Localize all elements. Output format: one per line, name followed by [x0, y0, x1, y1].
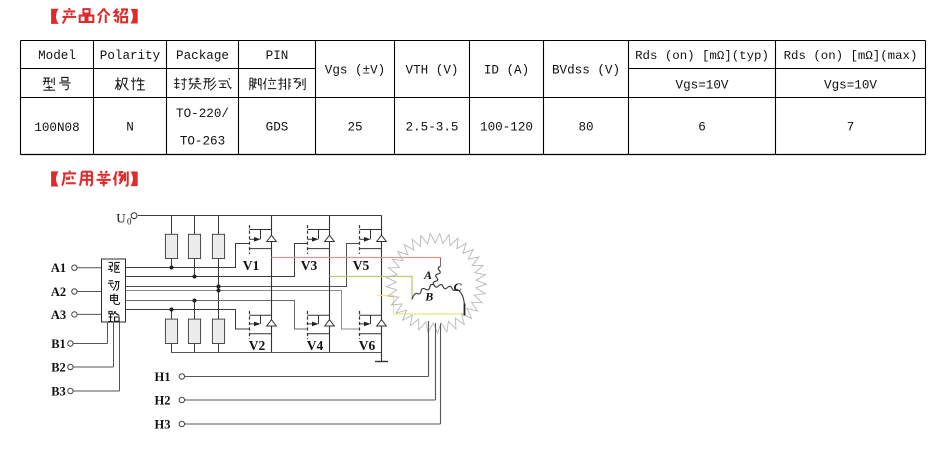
svg-text:A1: A1	[51, 261, 66, 275]
svg-text:GDS: GDS	[266, 121, 289, 135]
svg-text:V6: V6	[359, 338, 376, 353]
svg-text:6: 6	[698, 121, 706, 135]
svg-text:TO-263: TO-263	[180, 135, 225, 149]
svg-text:Rds (on) [mΩ](typ): Rds (on) [mΩ](typ)	[635, 49, 769, 63]
svg-text:U: U	[116, 210, 126, 225]
svg-text:Vgs=10V: Vgs=10V	[676, 78, 729, 92]
svg-text:A2: A2	[51, 285, 66, 299]
svg-text:7: 7	[847, 121, 855, 135]
svg-text:V1: V1	[243, 258, 260, 273]
svg-text:B1: B1	[51, 337, 66, 351]
svg-text:100-120: 100-120	[480, 121, 533, 135]
svg-text:H3: H3	[155, 417, 171, 431]
svg-text:Vgs=10V: Vgs=10V	[824, 78, 877, 92]
svg-text:N: N	[126, 121, 134, 135]
svg-text:H1: H1	[155, 370, 171, 384]
svg-text:Package: Package	[176, 49, 229, 63]
svg-text:B3: B3	[51, 384, 66, 398]
svg-text:VTH (V): VTH (V)	[406, 64, 459, 78]
svg-text:ID (A): ID (A)	[484, 64, 529, 78]
svg-text:V4: V4	[307, 338, 324, 353]
svg-text:V3: V3	[301, 258, 318, 273]
svg-text:B2: B2	[51, 360, 66, 374]
svg-text:A: A	[423, 268, 432, 282]
svg-text:C: C	[453, 280, 462, 294]
svg-text:80: 80	[578, 121, 593, 135]
svg-text:A3: A3	[51, 308, 66, 322]
svg-text:0: 0	[127, 216, 132, 226]
svg-text:TO-220/: TO-220/	[176, 107, 229, 121]
svg-text:PIN: PIN	[266, 49, 289, 63]
svg-text:Rds (on) [mΩ](max): Rds (on) [mΩ](max)	[784, 49, 918, 63]
svg-text:25: 25	[347, 121, 362, 135]
svg-text:100N08: 100N08	[34, 121, 79, 135]
svg-text:Vgs (±V): Vgs (±V)	[325, 64, 385, 78]
svg-text:V2: V2	[249, 338, 266, 353]
svg-text:Polarity: Polarity	[100, 49, 161, 63]
svg-text:2.5-3.5: 2.5-3.5	[406, 121, 459, 135]
svg-text:Model: Model	[38, 49, 76, 63]
svg-text:BVdss (V): BVdss (V)	[552, 64, 620, 78]
svg-text:B: B	[424, 290, 433, 304]
svg-text:V5: V5	[353, 258, 370, 273]
svg-text:H2: H2	[155, 393, 171, 407]
